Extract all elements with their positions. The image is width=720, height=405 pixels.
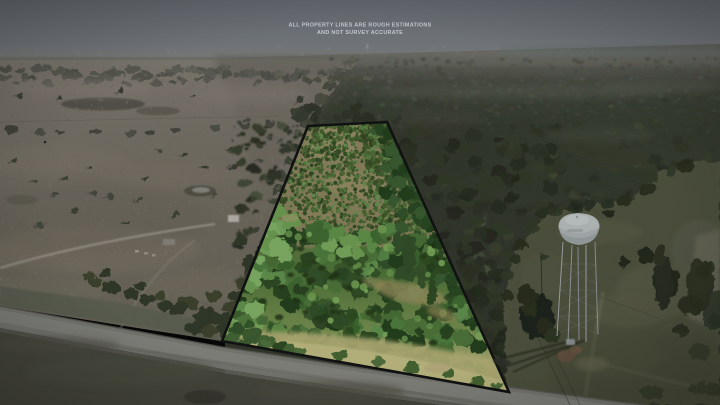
svg-text:AND NOT SURVEY ACCURATE: AND NOT SURVEY ACCURATE (317, 30, 403, 36)
svg-text:ALL PROPERTY LINES ARE ROUGH E: ALL PROPERTY LINES ARE ROUGH ESTIMATIONS (289, 23, 432, 29)
